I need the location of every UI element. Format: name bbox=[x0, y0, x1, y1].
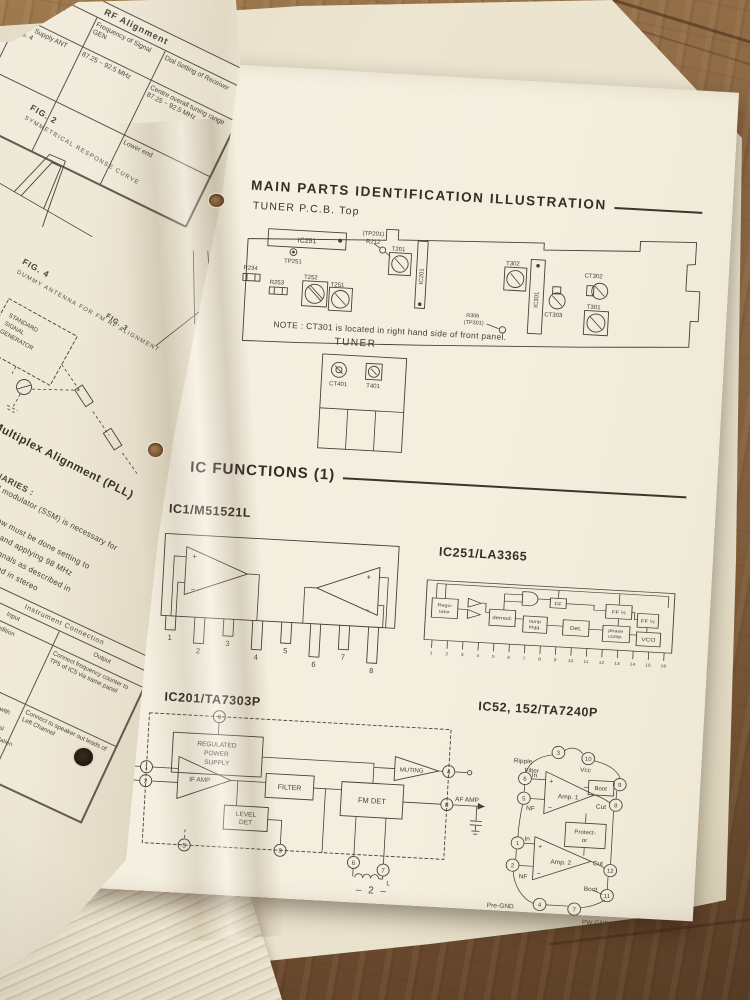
ct302-trimmer bbox=[586, 283, 608, 300]
pcb-label-ic251: IC251 bbox=[298, 237, 317, 245]
amp1-minus: − bbox=[548, 805, 552, 812]
pcb-label-r253: R253 bbox=[270, 280, 285, 287]
rps-label: POWER bbox=[204, 750, 229, 758]
opamp-plus: + bbox=[192, 552, 197, 561]
pcb-label-ct303: CT303 bbox=[544, 312, 563, 319]
protector-label: or bbox=[582, 838, 588, 844]
ic52-pin-11: 11 bbox=[600, 889, 613, 902]
ic201-pin1-dot bbox=[418, 302, 422, 306]
pcb-label-r212: R212 bbox=[366, 239, 381, 246]
ic251-pin-number: 3 bbox=[461, 652, 465, 657]
ic251-pin-number: 2 bbox=[445, 652, 449, 657]
ic251-pin-number: 12 bbox=[599, 660, 605, 665]
rps-label: SUPPLY bbox=[204, 759, 230, 767]
amp1-label: Amp. 1 bbox=[558, 793, 580, 801]
svg-text:2: 2 bbox=[511, 863, 515, 869]
level-det-label: LEVEL bbox=[236, 811, 257, 819]
af-amp-label: AF AMP bbox=[455, 796, 479, 804]
ic1-pin-number: 5 bbox=[283, 646, 288, 655]
lamp-label: trigg. bbox=[529, 625, 541, 631]
ic251-title: IC251/LA3365 bbox=[439, 545, 528, 564]
svg-text:3: 3 bbox=[557, 751, 561, 757]
r234-resistor bbox=[243, 273, 260, 281]
fm-det-label: FM DET bbox=[358, 796, 387, 807]
ic1-pin-number: 4 bbox=[253, 653, 258, 662]
ic251-pin-number: 5 bbox=[492, 654, 496, 659]
label-t401: T401 bbox=[366, 383, 381, 390]
nf1-label: NF bbox=[526, 805, 535, 812]
ic52-pin-10: 10 bbox=[582, 752, 595, 765]
filter-label: FILTER bbox=[278, 784, 302, 792]
and-gate bbox=[522, 592, 538, 607]
inductor-coil bbox=[355, 873, 379, 878]
ic1-pin-number: 3 bbox=[225, 639, 230, 648]
ic251-pin-number: 8 bbox=[538, 657, 542, 662]
amp2-plus: + bbox=[538, 844, 542, 851]
binder-hole bbox=[148, 443, 163, 457]
ic251-pin1-dot bbox=[338, 239, 342, 243]
ic1-internal-wires bbox=[171, 556, 389, 628]
boot2-label: Boot bbox=[584, 886, 598, 894]
pcb-label-ic201: IC201 bbox=[419, 268, 426, 285]
pcb-label-tp301: (TP301) bbox=[464, 320, 484, 327]
ct303-trimmer bbox=[549, 286, 566, 309]
svg-text:2: 2 bbox=[144, 778, 148, 785]
muting-label: MUTING bbox=[400, 767, 424, 774]
ic-functions-heading-row: IC FUNCTIONS (1) bbox=[190, 459, 687, 504]
source-slash bbox=[17, 380, 31, 394]
t201-transformer bbox=[388, 252, 411, 275]
svg-text:12: 12 bbox=[607, 869, 615, 875]
title-rule bbox=[615, 207, 703, 214]
svg-text:4: 4 bbox=[538, 903, 542, 909]
ic52-pin-3: 3 bbox=[552, 746, 565, 759]
ct401-trimmer bbox=[331, 362, 347, 378]
r212-part bbox=[380, 247, 386, 253]
t251-transformer bbox=[328, 287, 352, 311]
ic1-diagram: + − + − 1 2 3 4 5 6 7 8 bbox=[140, 516, 416, 681]
svg-text:7: 7 bbox=[381, 867, 385, 874]
amp-triangles bbox=[467, 598, 481, 619]
in2-label: In bbox=[524, 836, 530, 843]
cut1-label: Cut bbox=[596, 804, 607, 811]
ic251-pin-number: 4 bbox=[476, 653, 480, 658]
ic251-pin-number: 13 bbox=[614, 661, 620, 666]
ic1-pin-number: 1 bbox=[167, 633, 172, 642]
ic52-pin-5: 5 bbox=[517, 792, 530, 805]
pcb-label-tp251: TP251 bbox=[284, 259, 303, 266]
ic52-pin-7: 7 bbox=[567, 903, 580, 916]
ff-label: FF bbox=[554, 602, 562, 608]
fig2-trapezoid bbox=[6, 147, 76, 227]
svg-text:5: 5 bbox=[522, 796, 526, 802]
svg-text:11: 11 bbox=[604, 894, 611, 900]
ic52-pin-9: 9 bbox=[613, 778, 626, 791]
ic1-pin-number: 6 bbox=[311, 660, 316, 669]
demod-label: demod. bbox=[492, 615, 513, 621]
svg-text:8: 8 bbox=[445, 802, 449, 809]
ic251-pin-number: 15 bbox=[645, 663, 651, 668]
svg-text:9: 9 bbox=[217, 714, 221, 721]
ic251-pin-number: 6 bbox=[507, 655, 511, 660]
heading-rule bbox=[343, 477, 686, 498]
binder-hole bbox=[209, 194, 224, 207]
r212-leads bbox=[373, 244, 391, 257]
signal-generator-box bbox=[0, 299, 77, 386]
regulator-label: lator bbox=[439, 609, 450, 615]
tuner-box-dividers bbox=[318, 408, 404, 453]
series-resistor bbox=[75, 385, 93, 407]
svg-text:1: 1 bbox=[516, 841, 520, 847]
if-amp-label: IF AMP bbox=[189, 776, 211, 784]
ic52-pin-8: 8 bbox=[609, 799, 622, 812]
svg-text:6: 6 bbox=[351, 860, 355, 867]
ic201-pin-6: 6 bbox=[347, 856, 360, 869]
amp2-label: Amp. 2 bbox=[550, 859, 572, 867]
r306-lead bbox=[487, 324, 499, 329]
det-label: Det. bbox=[570, 626, 583, 632]
ic251-pin-number: 7 bbox=[523, 656, 527, 661]
ic52-pin-1: 1 bbox=[511, 836, 524, 849]
photo-of-service-manual: MAIN PARTS IDENTIFICATION ILLUSTRATION T… bbox=[0, 0, 750, 1000]
ic-functions-heading: IC FUNCTIONS (1) bbox=[190, 459, 336, 484]
tp251-dot bbox=[292, 251, 295, 254]
ripple-label: Ripple bbox=[514, 758, 533, 766]
pcb-label-r306: R306 bbox=[466, 313, 479, 320]
svg-text:Regu-: Regu- bbox=[437, 603, 453, 609]
r253-resistor bbox=[269, 287, 287, 295]
ic201-pin-2: 2 bbox=[139, 774, 152, 787]
svg-text:5: 5 bbox=[182, 842, 186, 849]
phase-label: comp. bbox=[608, 634, 623, 640]
ff-half-label: FF ½ bbox=[641, 618, 656, 625]
t301-transformer bbox=[583, 310, 608, 335]
muting-terminal bbox=[467, 770, 472, 775]
amp2-minus: − bbox=[536, 871, 540, 878]
opamp-minus: − bbox=[190, 585, 195, 594]
ic301-pin1-dot bbox=[536, 264, 540, 268]
svg-text:3: 3 bbox=[278, 848, 282, 855]
protector-label: Protect- bbox=[574, 830, 596, 837]
ic201-pin-7: 7 bbox=[377, 864, 390, 877]
t252-transformer bbox=[301, 281, 327, 307]
t401-transformer bbox=[365, 363, 382, 380]
pin5-stub bbox=[185, 827, 186, 838]
opamp-plus: + bbox=[366, 573, 371, 582]
pcb-label-ct302: CT302 bbox=[584, 273, 603, 280]
tuner-box-outline bbox=[318, 354, 407, 453]
level-det-label: DET bbox=[239, 819, 252, 827]
ic201-pin-4: 4 bbox=[442, 765, 455, 778]
ic1-opamp-right bbox=[315, 564, 380, 615]
svg-text:REGULATED POWER: REGULATED POWER SUPPLY bbox=[196, 741, 238, 768]
pcb-label-tp201: (TP201) bbox=[362, 231, 384, 238]
svg-text:9: 9 bbox=[618, 783, 622, 789]
ff-half-label: FF ½ bbox=[612, 609, 627, 616]
tuner-pcb-diagram: IC251 TP251 R234 R253 T252 T251 (TP201) … bbox=[237, 211, 715, 389]
opamp-minus: − bbox=[364, 606, 369, 615]
ic52-pin-2: 2 bbox=[506, 859, 519, 872]
ic251-pin-number: 11 bbox=[583, 659, 589, 664]
in1-label: In bbox=[532, 772, 538, 779]
binder-hole bbox=[74, 748, 93, 766]
vcc-label: Vcc bbox=[580, 767, 592, 774]
fig2-baseline bbox=[0, 179, 92, 237]
ic1-pin-number: 8 bbox=[369, 666, 374, 675]
ic251-pin-number: 1 bbox=[430, 651, 434, 656]
series-resistor bbox=[103, 428, 121, 450]
cut2-label: Cut bbox=[593, 860, 604, 867]
label-ct401: CT401 bbox=[329, 381, 348, 388]
nf2-label: NF bbox=[518, 873, 527, 880]
ic251-diagram: Regu- lator demod. lamp trigg. FF Det. F… bbox=[421, 562, 714, 678]
ic52-pin-12: 12 bbox=[604, 864, 617, 877]
tuner-box-diagram: CT401 T401 bbox=[314, 352, 411, 457]
pre-gnd-label: Pre-GND bbox=[487, 902, 515, 910]
boot1-label: Boot bbox=[594, 786, 607, 793]
amp1-plus: + bbox=[549, 779, 553, 786]
svg-text:4: 4 bbox=[447, 769, 451, 776]
ic201-wires bbox=[126, 718, 489, 885]
ic1-pin-number: 7 bbox=[341, 652, 346, 661]
ic251-pin-number: 9 bbox=[554, 658, 558, 663]
ic52-pin-4: 4 bbox=[533, 898, 546, 911]
svg-text:10: 10 bbox=[585, 757, 593, 763]
vco-label: VCO bbox=[641, 638, 656, 644]
ic1-pins bbox=[164, 616, 379, 664]
svg-text:7: 7 bbox=[572, 907, 576, 913]
svg-text:6: 6 bbox=[523, 777, 527, 783]
svg-text:lator: lator bbox=[439, 609, 450, 615]
pw-gnd-label: PW-GND bbox=[582, 919, 610, 927]
svg-text:1: 1 bbox=[144, 764, 148, 771]
ic52-title: IC52, 152/TA7240P bbox=[478, 699, 598, 720]
ic251-pin-number: 16 bbox=[661, 664, 667, 669]
ic52-diagram: + − Amp. 1 + − Amp. 2 Boot Protect- or R… bbox=[478, 720, 694, 936]
pcb-label-r234: R234 bbox=[243, 265, 258, 272]
ic251-pin-number: 10 bbox=[568, 658, 574, 663]
svg-text:STANDARD SIGNAL: STANDARD SIGNAL GENERATOR bbox=[0, 313, 44, 352]
tuner-box-label: TUNER bbox=[334, 337, 377, 350]
fig4-dashed-wires bbox=[0, 346, 168, 480]
ic251-pin-number: 14 bbox=[630, 662, 636, 667]
ic1-pin-number: 2 bbox=[196, 646, 201, 655]
pcb-label-ic301: IC301 bbox=[534, 291, 541, 308]
t302-transformer bbox=[504, 267, 527, 291]
svg-text:8: 8 bbox=[614, 803, 618, 809]
regulator-label: Regu- bbox=[437, 603, 453, 609]
rps-label: REGULATED bbox=[197, 741, 237, 750]
